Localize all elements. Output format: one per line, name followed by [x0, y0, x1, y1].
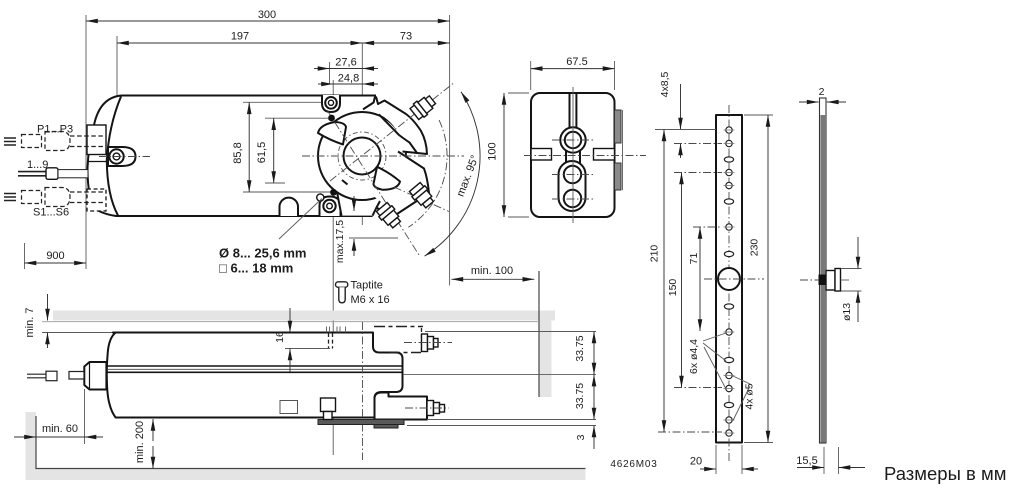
- svg-text:85,8: 85,8: [232, 142, 244, 163]
- svg-text:M6 x 16: M6 x 16: [351, 294, 390, 306]
- svg-text:Ø 8... 25,6 mm: Ø 8... 25,6 mm: [219, 246, 306, 261]
- svg-text:210: 210: [649, 245, 661, 263]
- svg-text:P1...P3: P1...P3: [37, 124, 73, 136]
- svg-text:min. 200: min. 200: [134, 421, 146, 463]
- svg-text:61,5: 61,5: [256, 142, 268, 163]
- svg-text:□ 6... 18 mm: □ 6... 18 mm: [219, 261, 293, 276]
- svg-text:4x8,5: 4x8,5: [659, 71, 671, 97]
- svg-text:24,8: 24,8: [338, 73, 359, 85]
- svg-text:150: 150: [667, 279, 679, 297]
- svg-text:300: 300: [258, 9, 276, 21]
- svg-text:3: 3: [575, 434, 587, 440]
- svg-text:S1...S6: S1...S6: [33, 207, 69, 219]
- svg-text:1...9: 1...9: [27, 159, 48, 171]
- svg-text:min. 7: min. 7: [24, 308, 36, 338]
- svg-text:33.75: 33.75: [574, 335, 586, 361]
- svg-text:900: 900: [46, 250, 64, 262]
- svg-text:230: 230: [749, 239, 761, 257]
- svg-text:6x ø4,4: 6x ø4,4: [688, 339, 700, 374]
- svg-text:20: 20: [690, 456, 702, 468]
- svg-text:67.5: 67.5: [566, 56, 587, 68]
- svg-text:min. 60: min. 60: [42, 423, 78, 435]
- svg-text:Taptite: Taptite: [351, 280, 383, 292]
- svg-text:ø13: ø13: [841, 303, 853, 321]
- svg-text:71: 71: [688, 253, 700, 265]
- svg-text:min. 100: min. 100: [471, 265, 513, 277]
- svg-text:100: 100: [487, 142, 499, 160]
- svg-text:max.17,5: max.17,5: [334, 220, 346, 263]
- svg-text:16: 16: [274, 331, 286, 343]
- svg-text:33.75: 33.75: [574, 383, 586, 409]
- svg-text:73: 73: [400, 31, 412, 43]
- svg-text:27,6: 27,6: [335, 57, 356, 69]
- svg-text:Размеры в мм: Размеры в мм: [884, 463, 1006, 484]
- svg-text:15,5: 15,5: [796, 455, 817, 467]
- svg-text:197: 197: [231, 31, 249, 43]
- svg-text:2: 2: [819, 86, 825, 98]
- svg-text:4626M03: 4626M03: [610, 459, 657, 470]
